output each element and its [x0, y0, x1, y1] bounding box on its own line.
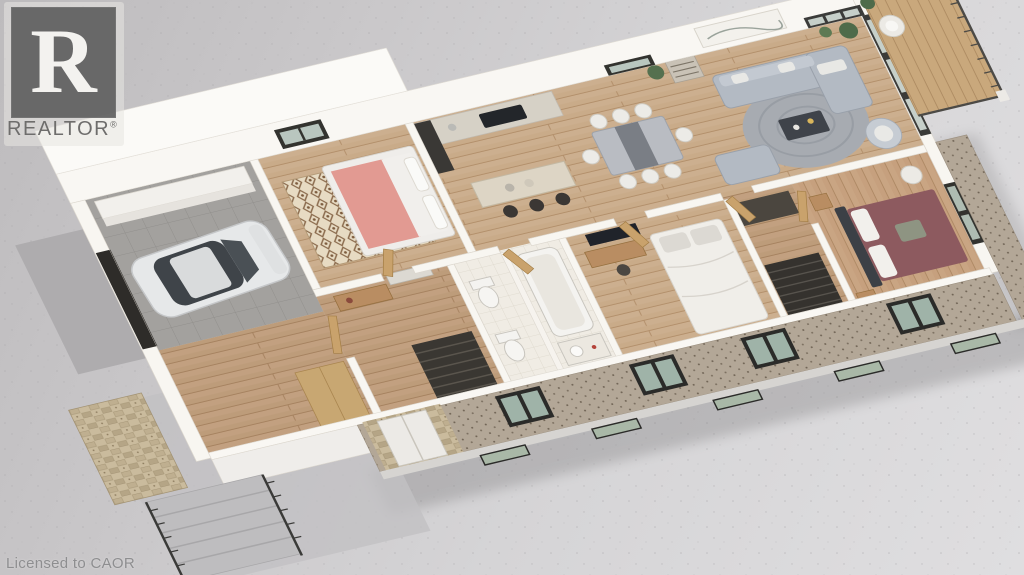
realtor-watermark: R REALTOR® [4, 2, 124, 146]
license-text: Licensed to CAOR [6, 555, 135, 572]
floor-plan-scene [0, 0, 1024, 575]
realtor-wordmark: REALTOR® [7, 118, 124, 141]
floor-plan-rendering: R REALTOR® Licensed to CAOR [0, 0, 1024, 575]
realtor-logo-icon: R [11, 7, 116, 118]
registered-mark: ® [110, 119, 118, 129]
realtor-logo-letter: R [30, 15, 96, 107]
